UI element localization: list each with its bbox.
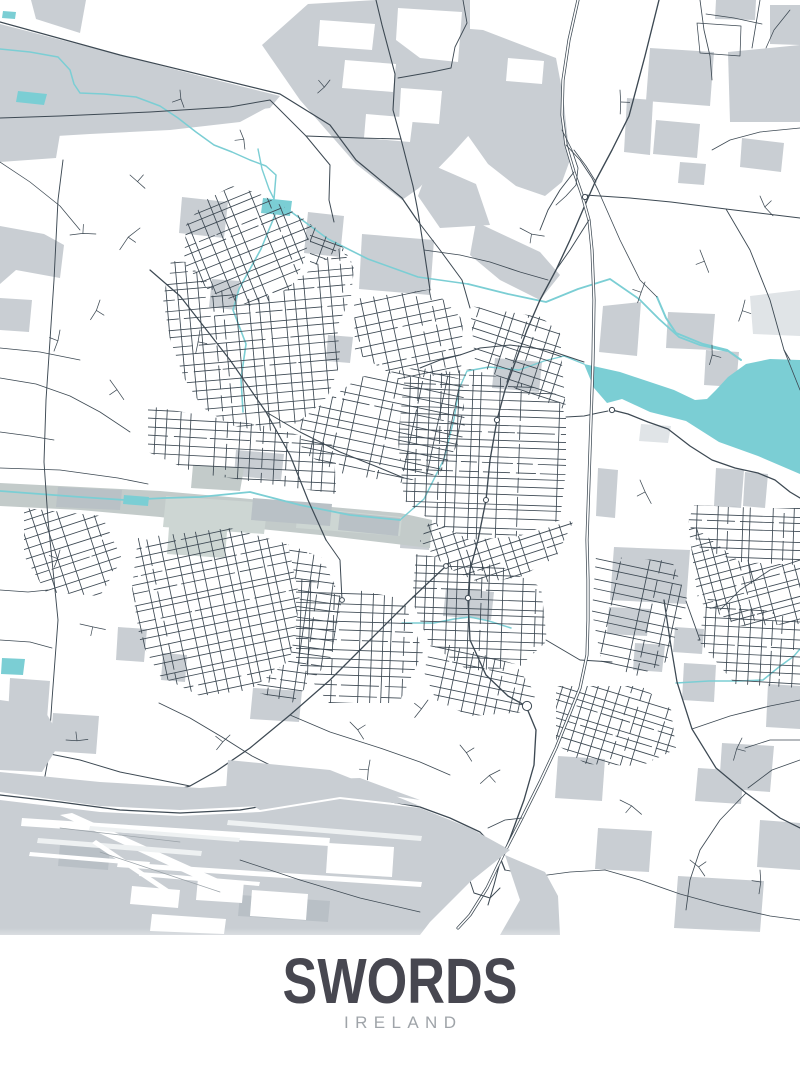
svg-text:SWORDS: SWORDS [283, 945, 518, 1017]
